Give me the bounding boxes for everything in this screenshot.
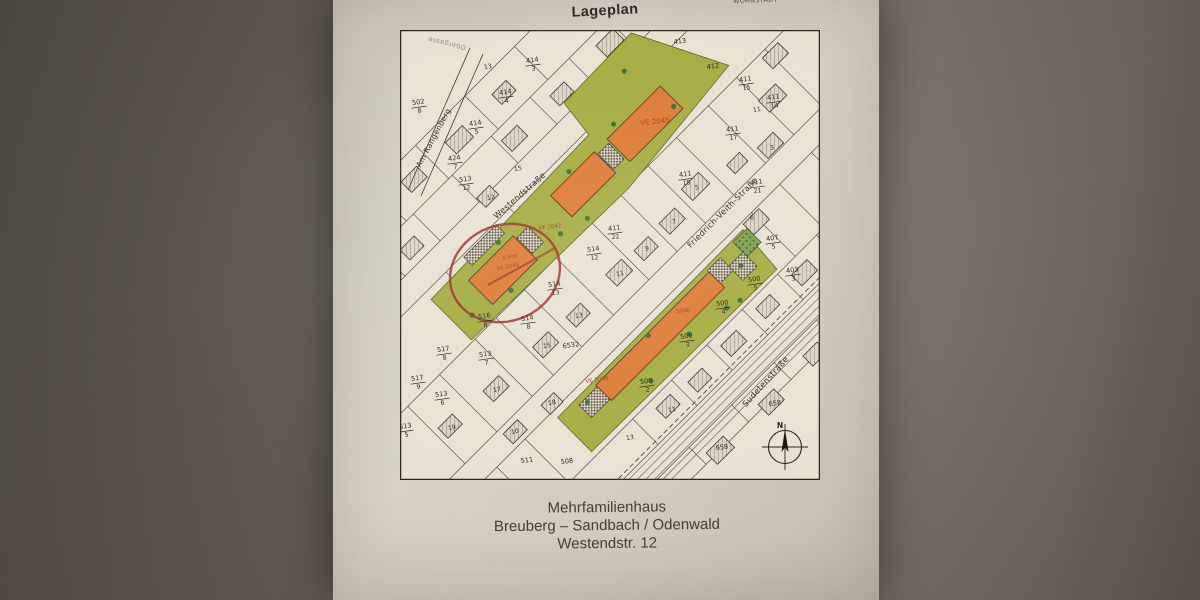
cadastral-map-drawing xyxy=(400,30,820,480)
page-title: Lageplan xyxy=(550,0,661,22)
photo-background: WOHNSTADT Lageplan ObergasseAm Rangenber… xyxy=(0,0,1200,600)
site-plan-map: ObergasseAm RangenbergWestendstraßeFried… xyxy=(400,30,820,480)
caption-block: Mehrfamilienhaus Breuberg – Sandbach / O… xyxy=(417,497,798,555)
wohnstadt-stamp: WOHNSTADT xyxy=(733,0,778,5)
paper-sheet: WOHNSTADT Lageplan ObergasseAm Rangenber… xyxy=(333,0,879,600)
caption-line-3: Westendstr. 12 xyxy=(417,533,797,555)
